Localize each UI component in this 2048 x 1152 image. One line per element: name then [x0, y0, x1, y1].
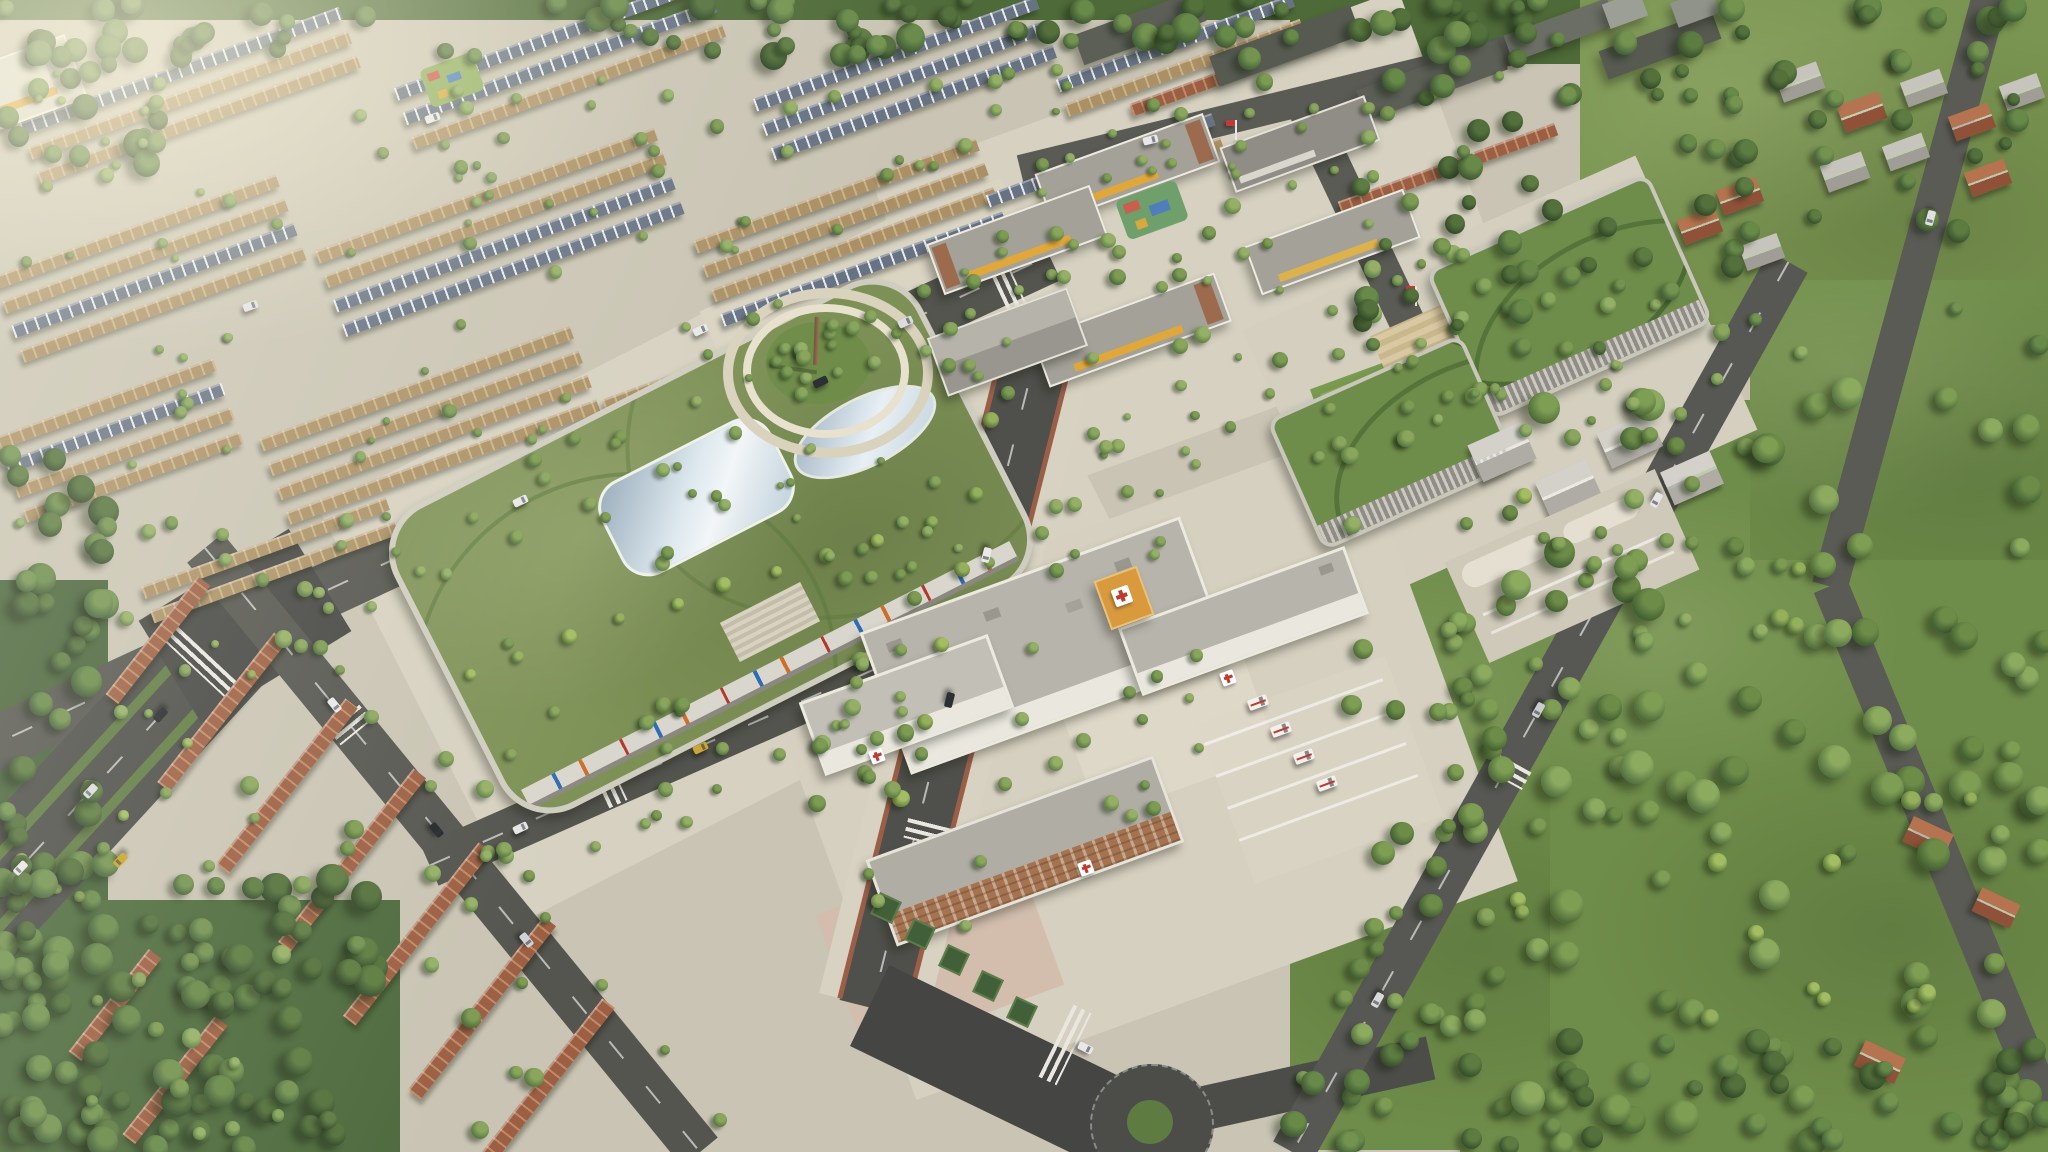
sunlight-haze: [0, 0, 2048, 1152]
aerial-city-render: [0, 0, 2048, 1152]
